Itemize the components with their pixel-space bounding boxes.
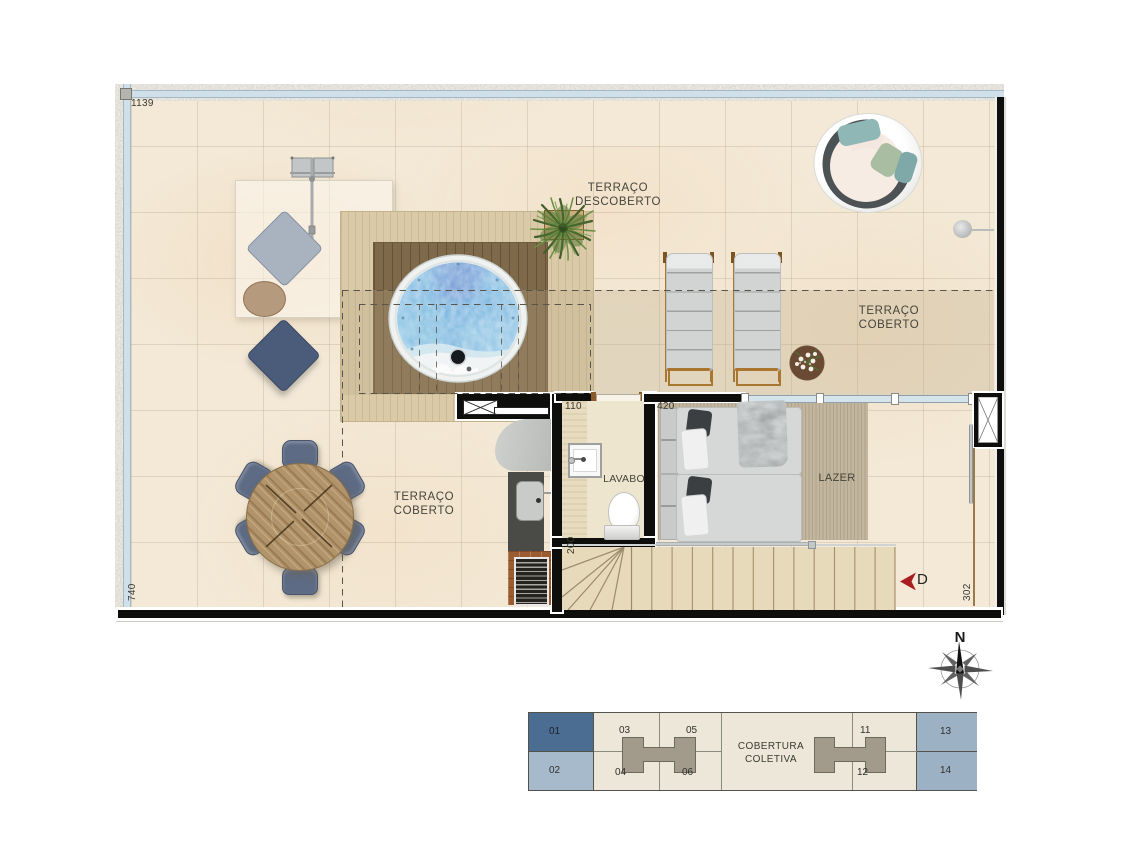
svg-text:N: N <box>955 629 966 646</box>
